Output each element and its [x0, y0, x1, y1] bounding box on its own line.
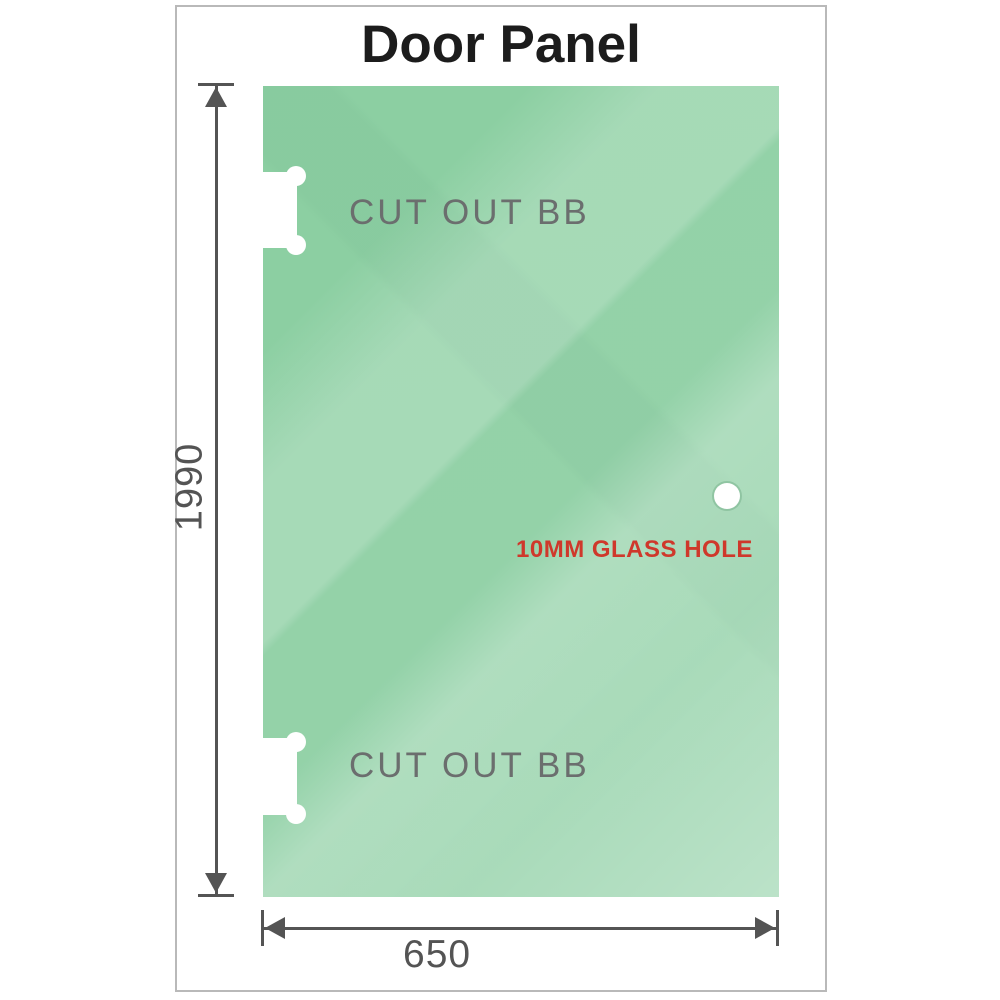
arrow-down-icon	[205, 873, 227, 893]
height-dimension-line	[215, 86, 218, 894]
page-title: Door Panel	[175, 14, 827, 75]
height-dimension-label: 1990	[169, 443, 212, 532]
hinge-cutout-top-icon	[263, 164, 308, 258]
height-dimension-cap-bottom	[198, 894, 234, 897]
cutout-top-label: CUT OUT BB	[349, 193, 590, 233]
width-dimension-tick-right	[776, 910, 779, 946]
glass-hole-icon	[714, 483, 740, 509]
height-dimension-cap-top	[198, 83, 234, 86]
arrow-up-icon	[205, 87, 227, 107]
arrow-right-icon	[755, 917, 775, 939]
glass-hole-label: 10MM GLASS HOLE	[516, 536, 753, 564]
cutout-bottom-label: CUT OUT BB	[349, 746, 590, 786]
width-dimension-tick-left	[261, 910, 264, 946]
arrow-left-icon	[265, 917, 285, 939]
width-dimension-label: 650	[403, 933, 471, 977]
width-dimension-line	[264, 927, 776, 930]
hinge-cutout-bottom-icon	[263, 726, 308, 826]
